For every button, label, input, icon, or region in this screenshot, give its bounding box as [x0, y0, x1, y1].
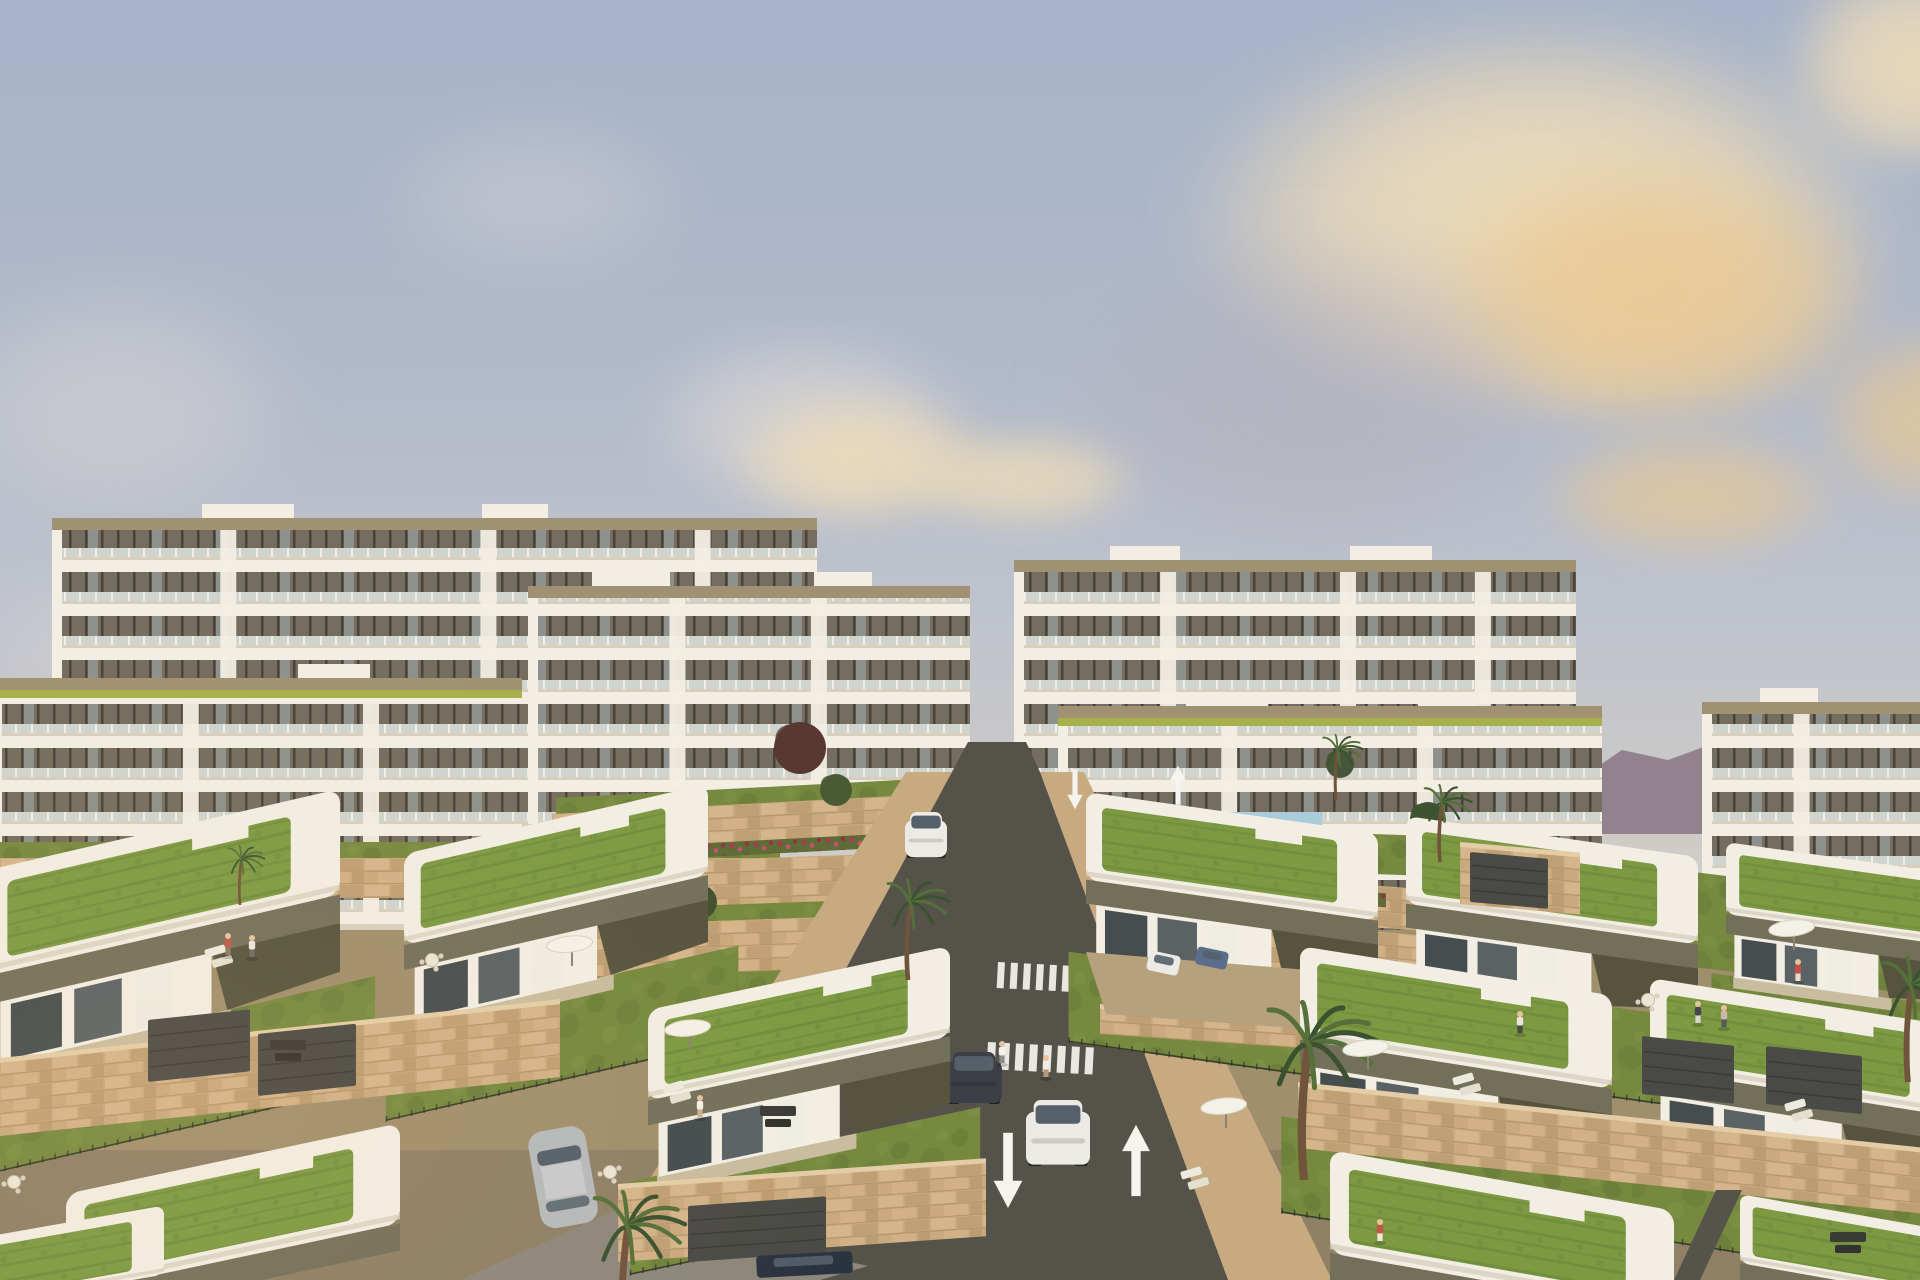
development-scene	[0, 0, 1920, 1280]
garage-door	[1470, 852, 1548, 909]
car	[946, 1052, 1002, 1104]
car	[1026, 1100, 1090, 1166]
garage-door	[258, 1024, 356, 1096]
garden-tree	[820, 774, 852, 806]
garage-door	[1766, 1046, 1862, 1114]
garage-door	[688, 1196, 826, 1262]
garden-tree	[774, 722, 826, 774]
architectural-rendering	[0, 0, 1920, 1280]
garage-door	[1642, 1036, 1734, 1104]
garage-door	[148, 1009, 250, 1082]
car	[905, 812, 947, 858]
